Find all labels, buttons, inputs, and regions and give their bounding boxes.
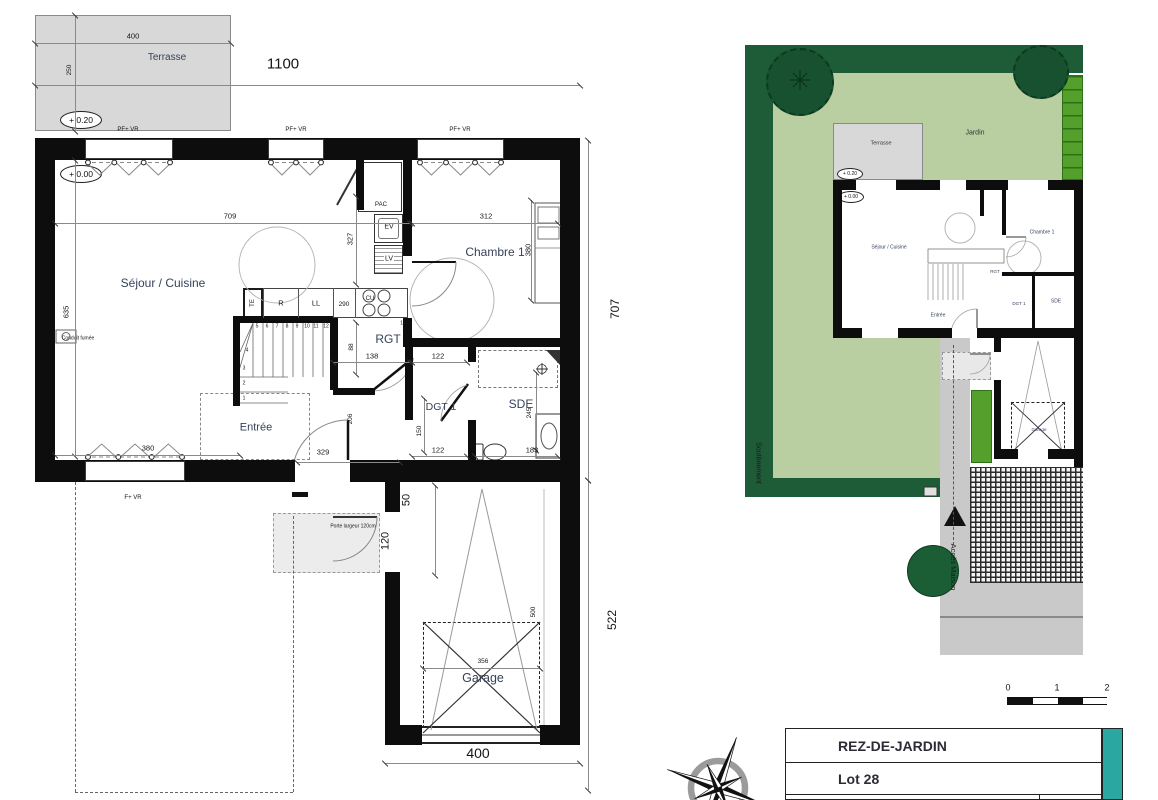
fixture-label-te: TE [250, 299, 256, 307]
dimension-line [412, 456, 467, 457]
mini-room-rgt: RGT [990, 270, 1000, 275]
window-casement-icon [85, 160, 173, 176]
dimension-label: 356 [478, 659, 489, 666]
dimension-label: 1100 [267, 57, 299, 72]
wall-opening [856, 180, 896, 190]
dimension-line [423, 668, 540, 669]
wall-segment [560, 160, 580, 745]
dimension-label: 312 [480, 212, 493, 220]
fixture-label-lv: LV [384, 256, 394, 263]
dimension-tick [577, 82, 583, 88]
garage-door-note: Porte largeur 120cm [330, 525, 375, 530]
wall-opening [952, 328, 977, 338]
dimension-label: 245 [527, 408, 534, 419]
dimension-label: 327 [346, 233, 354, 246]
dimension-label: 122 [432, 446, 445, 454]
dimension-line [412, 362, 467, 363]
retaining-wall-label: Soutènement [755, 442, 762, 484]
window-frame [85, 139, 173, 159]
path-boundary-dashes [953, 345, 954, 545]
wall-segment [403, 160, 412, 256]
wall-opening [862, 328, 898, 338]
kitchen-counter [243, 288, 408, 318]
window-frame [417, 139, 504, 159]
counter-divider [298, 288, 299, 318]
fixture-label-fridge: R [278, 299, 283, 307]
scale-tick-label: 2 [1104, 684, 1109, 693]
room-label-chambre: Chambre 1 [465, 246, 524, 258]
scale-bar-segment [1058, 698, 1083, 704]
dimension-label: 150 [417, 426, 424, 437]
dimension-line [333, 362, 410, 363]
dimension-line [588, 140, 589, 480]
scale-bar-segment [1008, 698, 1033, 704]
sidewalk-edge-line [940, 616, 1083, 618]
dimension-label: 206 [348, 414, 355, 425]
wall-segment [385, 482, 400, 512]
wall-segment [333, 388, 375, 395]
wall-segment [385, 572, 400, 725]
room-label-entree: Entrée [240, 423, 272, 434]
dimension-line [75, 160, 76, 456]
dimension-label: 183 [526, 446, 539, 454]
wall-segment [994, 449, 1018, 459]
garden-area [833, 338, 940, 478]
window-frame [85, 461, 185, 481]
dimension-label: 250 [67, 65, 74, 76]
dimension-label: 290 [339, 302, 350, 309]
parcel-dashed-line [75, 792, 293, 793]
mini-porch-area [942, 352, 991, 380]
dimension-line [356, 322, 357, 374]
window-casement-icon [417, 160, 504, 176]
title-block-divider [1039, 795, 1040, 800]
dimension-tick [421, 395, 427, 401]
dimension-tick [585, 137, 591, 143]
wall-segment [1048, 449, 1083, 459]
dimension-label: 138 [366, 352, 379, 360]
counter-divider [333, 288, 334, 318]
mini-room-garage: Garage [1031, 428, 1046, 433]
stair-number: 4 [246, 349, 249, 354]
fixture-label-washer: LL [312, 299, 320, 307]
wall-opening [1008, 180, 1048, 190]
dimension-label: 400 [127, 32, 140, 40]
fixture-label-ev: EV [384, 224, 393, 231]
scale-bar [1007, 697, 1107, 705]
dimension-label: 329 [317, 448, 330, 456]
wall-segment [540, 725, 580, 745]
wall-segment [233, 316, 240, 406]
mini-house-interior [833, 180, 1083, 338]
dimension-label: 120 [381, 532, 392, 550]
room-label-dgt: DGT 1 [426, 402, 457, 413]
wall-opening [295, 460, 350, 482]
parcel-dashed-line [75, 482, 76, 792]
window-casement-icon [85, 443, 185, 459]
room-label-sejour: Séjour / Cuisine [121, 277, 206, 289]
dimension-line [412, 223, 558, 224]
dimension-line [75, 15, 76, 131]
dimension-tick [577, 760, 583, 766]
dimension-label: 122 [432, 352, 445, 360]
flue-label: Conduit fumée [62, 337, 95, 342]
fixture-label-cooktop: CU [366, 296, 375, 302]
dimension-line [536, 372, 537, 450]
wall-segment [356, 160, 364, 210]
mini-level-badge-upper: + 0.20 [837, 168, 863, 180]
wall-segment [237, 316, 333, 323]
scale-tick-label: 1 [1054, 684, 1059, 693]
mini-room-chambre: Chambre 1 [1030, 231, 1055, 236]
wall-opening [1018, 449, 1048, 459]
window-label: PF+ VR [117, 127, 138, 133]
wall-segment [1002, 272, 1077, 276]
sidewalk [940, 583, 1083, 655]
window-label: PF+ VR [285, 127, 306, 133]
stair-number: 2 [243, 382, 246, 387]
floor-title: REZ-DE-JARDIN [838, 738, 947, 754]
wall-segment [994, 338, 1001, 352]
dimension-label: 380 [142, 444, 155, 452]
dimension-label: 707 [609, 299, 621, 319]
garden-label: Jardin [965, 130, 984, 137]
hedge-strip-right [1062, 75, 1083, 180]
lot-number: Lot 28 [838, 771, 879, 787]
wall-segment [35, 160, 55, 460]
mini-room-sejour: Séjour / Cuisine [871, 246, 906, 251]
dimension-line [475, 456, 558, 457]
dimension-label: 522 [606, 610, 618, 630]
dimension-tick [528, 197, 534, 203]
dimension-label: 50 [402, 494, 413, 506]
room-label-rgt: RGT [375, 333, 400, 345]
dimension-line [35, 43, 231, 44]
tree-icon [766, 48, 834, 116]
stair-number: 1 [243, 397, 246, 402]
title-block-accent-bar [1102, 728, 1123, 800]
wall-segment [994, 380, 1001, 459]
scale-bar-segment [1083, 698, 1108, 704]
garden-area [773, 180, 833, 478]
scale-tick-label: 0 [1005, 684, 1010, 693]
stair-number: 6 [266, 325, 269, 330]
wall-segment [833, 180, 842, 338]
driveway-paving [970, 467, 1083, 583]
tree-icon [1013, 45, 1069, 99]
wall-segment [980, 190, 984, 216]
dimension-line [55, 455, 240, 456]
room-label-garage: Garage [462, 672, 504, 685]
stair-number: 10 [304, 325, 310, 330]
floor-plan-canvas: Terrasse Séjour / Cuisine Chambre 1 RGT … [0, 0, 1158, 800]
stair-number: 3 [243, 367, 246, 372]
wall-segment [1002, 190, 1006, 235]
title-block-floor-row: REZ-DE-JARDIN [786, 729, 1101, 763]
wall-segment [385, 725, 422, 745]
parcel-dashed-line [293, 516, 294, 792]
wall-segment [330, 318, 338, 390]
scale-bar-segment [1033, 698, 1058, 704]
house-access-label: Accès Maison [949, 544, 957, 591]
dimension-label: 88 [349, 343, 356, 350]
dimension-line [385, 763, 580, 764]
stair-number: 5 [256, 325, 259, 330]
stair-number: 9 [296, 325, 299, 330]
mini-room-sde: SDE [1051, 300, 1061, 305]
dimension-label: 500 [531, 607, 538, 618]
site-hedge-bottom [752, 478, 940, 497]
stair-number: 7 [276, 325, 279, 330]
counter-divider [355, 288, 356, 318]
dimension-line [424, 398, 425, 452]
dimension-line [588, 480, 589, 790]
dimension-label: 400 [466, 746, 489, 760]
garage-door-line [422, 734, 540, 736]
window-frame [268, 139, 324, 159]
counter-divider [263, 288, 264, 318]
wall-opening [940, 180, 966, 190]
wall-segment [468, 347, 476, 362]
dimension-label: 380 [524, 244, 532, 257]
porch-area [273, 513, 380, 573]
stair-number: 11 [313, 325, 318, 330]
planting-strip [971, 390, 992, 463]
dimension-line [435, 485, 436, 575]
title-block: REZ-DE-JARDIN Lot 28 [785, 728, 1102, 800]
dimension-line [297, 462, 400, 463]
room-label-terrasse: Terrasse [148, 53, 186, 63]
fixture-label-pac: PAC [375, 202, 387, 208]
wall-segment [403, 338, 563, 347]
window-casement-icon [268, 160, 324, 176]
mini-terrace-label: Terrasse [870, 141, 891, 147]
mini-room-dgt: DGT 1 [1012, 302, 1025, 307]
wall-segment [1032, 276, 1035, 328]
window-label-bottom: F+ VR [124, 495, 141, 501]
mini-room-entree: Entrée [931, 314, 946, 319]
shower-outline [478, 350, 558, 388]
stair-number: 12 [323, 325, 329, 330]
access-arrow-icon [944, 506, 966, 526]
dimension-tick [353, 319, 359, 325]
dimension-label: 709 [224, 212, 237, 220]
dimension-line [356, 196, 357, 284]
door-threshold-mark [292, 492, 308, 497]
dimension-line [35, 85, 580, 86]
stair-number: 8 [286, 325, 289, 330]
level-badge-upper: + 0.20 [60, 111, 102, 129]
title-block-lot-row: Lot 28 [786, 763, 1101, 795]
dimension-label: 635 [62, 306, 70, 319]
site-hedge-left [745, 45, 773, 497]
window-label: PF+ VR [449, 127, 470, 133]
dimension-tick [432, 482, 438, 488]
compass-rose-icon [655, 722, 795, 800]
wall-segment [1074, 180, 1083, 467]
stair-number: 15 [400, 322, 406, 327]
